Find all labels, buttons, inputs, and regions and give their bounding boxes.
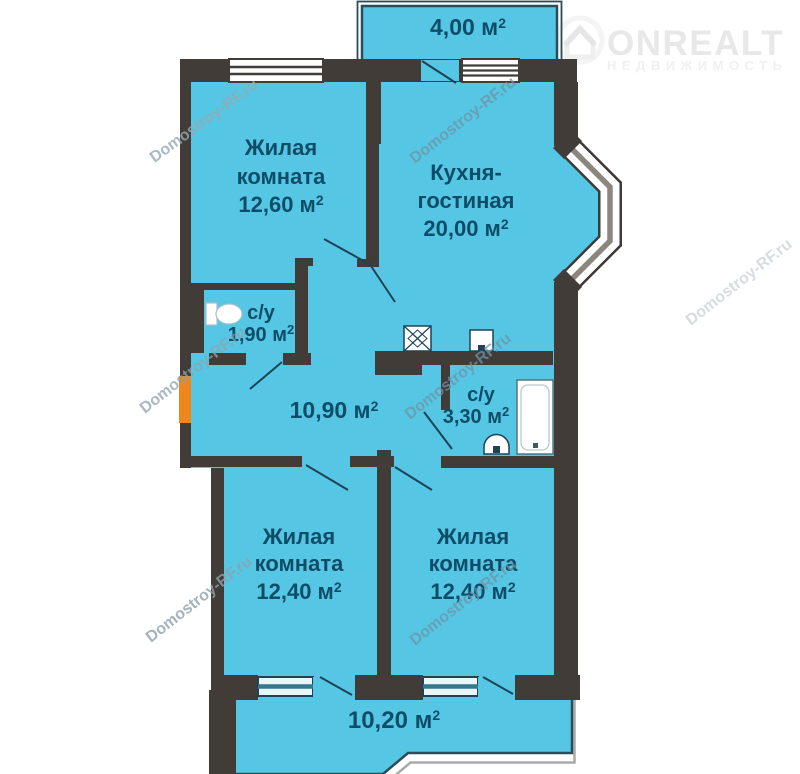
svg-text:с/у: с/у: [467, 384, 496, 406]
svg-text:12,40 м2: 12,40 м2: [256, 579, 341, 604]
svg-text:3,30 м2: 3,30 м2: [443, 404, 510, 428]
svg-text:комната: комната: [237, 164, 326, 189]
svg-text:Жилая: Жилая: [262, 524, 335, 549]
svg-text:Жилая: Жилая: [244, 135, 317, 160]
svg-text:комната: комната: [255, 551, 344, 576]
svg-text:с/у: с/у: [247, 302, 276, 324]
svg-text:4,00 м2: 4,00 м2: [430, 14, 506, 40]
svg-text:Жилая: Жилая: [436, 524, 509, 549]
svg-text:гостиная: гостиная: [418, 188, 515, 213]
svg-text:12,60 м2: 12,60 м2: [238, 192, 323, 217]
svg-text:10,90 м2: 10,90 м2: [290, 397, 379, 423]
svg-text:НЕДВИЖИМОСТЬ: НЕДВИЖИМОСТЬ: [607, 58, 787, 73]
svg-text:10,20 м2: 10,20 м2: [348, 707, 440, 734]
svg-text:Кухня-: Кухня-: [430, 160, 502, 185]
svg-text:20,00 м2: 20,00 м2: [423, 216, 508, 241]
